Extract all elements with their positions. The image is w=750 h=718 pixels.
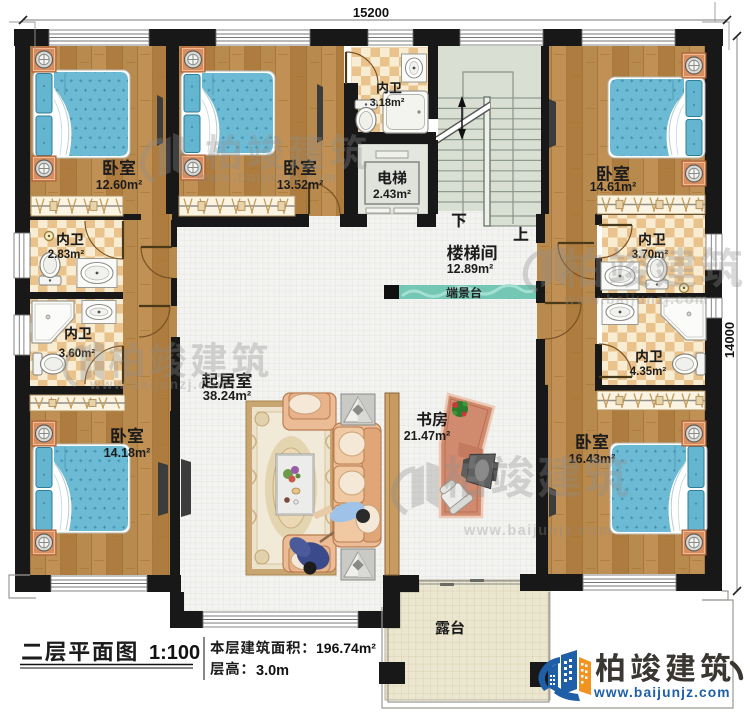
svg-text:12.60m²: 12.60m²	[96, 178, 143, 192]
svg-text:15200: 15200	[353, 5, 389, 20]
svg-text:21.47m²: 21.47m²	[404, 429, 451, 443]
svg-text:4.35m²: 4.35m²	[630, 366, 667, 378]
svg-text:3.0m: 3.0m	[256, 663, 289, 679]
svg-text:12.89m²: 12.89m²	[447, 262, 494, 276]
svg-text:14000: 14000	[722, 322, 737, 358]
svg-text:www.baijunjz.com: www.baijunjz.com	[463, 523, 613, 539]
svg-text:14.18m²: 14.18m²	[104, 446, 151, 460]
svg-text:www.baijunzj.com: www.baijunzj.com	[89, 377, 231, 392]
svg-text:www.baijunjz.com: www.baijunjz.com	[593, 685, 731, 700]
svg-text:www.baijunzj.com: www.baijunzj.com	[563, 291, 709, 307]
svg-text:2.83m²: 2.83m²	[48, 249, 85, 261]
svg-text:1:100: 1:100	[149, 642, 200, 664]
svg-text:www.baijunzj.com: www.baijunzj.com	[196, 170, 338, 185]
svg-text:14.61m²: 14.61m²	[590, 180, 637, 194]
svg-text:3.18m²: 3.18m²	[370, 97, 405, 109]
svg-text:2.43m²: 2.43m²	[373, 187, 411, 201]
svg-text:196.74m²: 196.74m²	[316, 640, 376, 656]
